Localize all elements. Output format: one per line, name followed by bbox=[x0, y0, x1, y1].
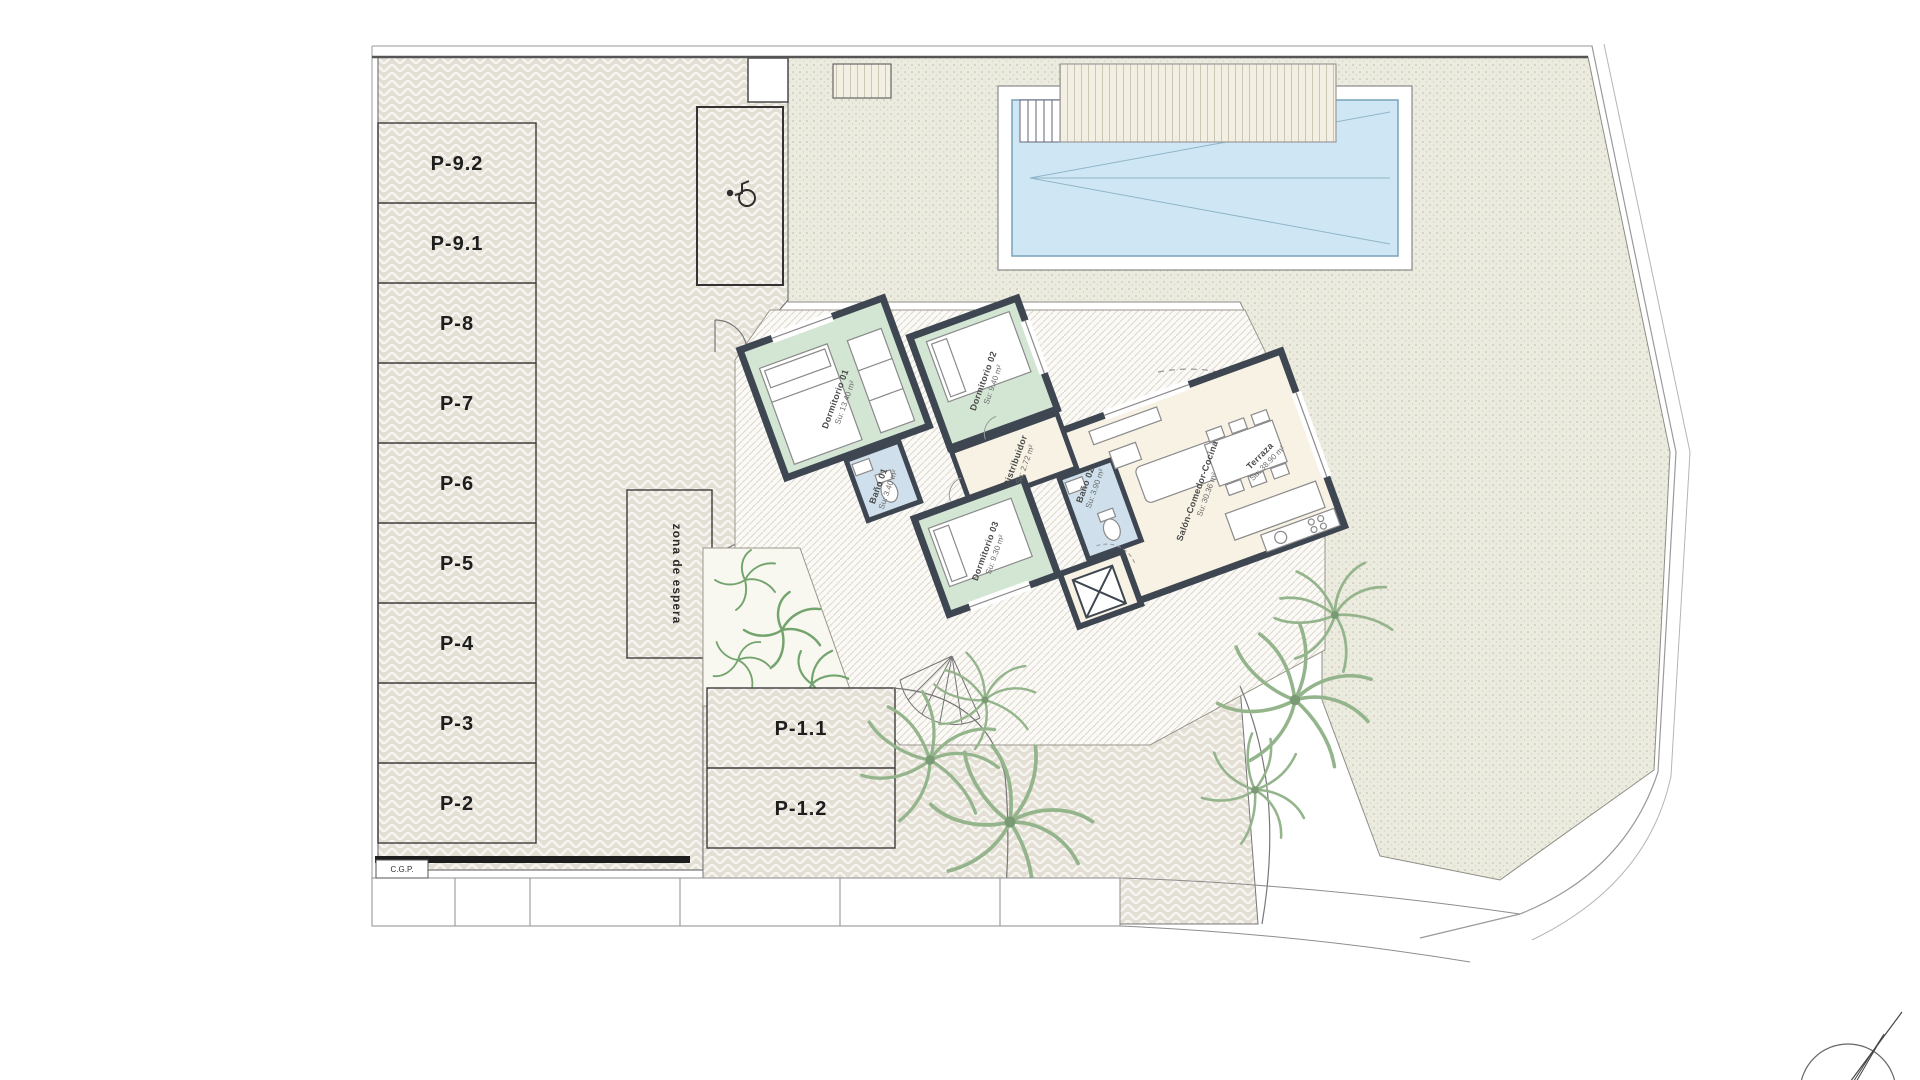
compass-rose bbox=[1772, 1012, 1902, 1080]
waiting-zone: zona de espera bbox=[627, 490, 712, 658]
stall-label: P-2 bbox=[440, 793, 474, 815]
top-boundary-wall bbox=[372, 46, 1592, 57]
stall-label: P-9.1 bbox=[431, 233, 484, 255]
site-plan-canvas: P-9.2 P-9.1 P-8 P-7 P-6 P-5 P-4 P-3 P-2 bbox=[0, 0, 1920, 1080]
utility-connection-box: C.G.P. bbox=[376, 860, 428, 878]
sidewalk bbox=[372, 878, 1520, 962]
pool-ladder bbox=[1020, 100, 1062, 142]
stall-label: P-8 bbox=[440, 313, 474, 335]
stall-label: P-5 bbox=[440, 553, 474, 575]
parking-bottom: P-1.1 P-1.2 bbox=[707, 688, 895, 848]
accessible-parking-stall bbox=[697, 107, 783, 285]
pool-deck bbox=[1060, 64, 1336, 142]
stall-label: P-7 bbox=[440, 393, 474, 415]
north-arrow-icon bbox=[1798, 1012, 1902, 1080]
waiting-zone-label: zona de espera bbox=[670, 524, 684, 625]
stall-label: P-9.2 bbox=[431, 153, 484, 175]
stall-label: P-6 bbox=[440, 473, 474, 495]
utility-box-label: C.G.P. bbox=[391, 865, 414, 874]
stall-label: P-1.2 bbox=[775, 798, 828, 820]
stall-label: P-3 bbox=[440, 713, 474, 735]
pool bbox=[998, 64, 1412, 270]
slatted-box bbox=[833, 64, 891, 98]
storage-box bbox=[748, 58, 788, 102]
stall-label: P-4 bbox=[440, 633, 474, 655]
stall-label: P-1.1 bbox=[775, 718, 828, 740]
